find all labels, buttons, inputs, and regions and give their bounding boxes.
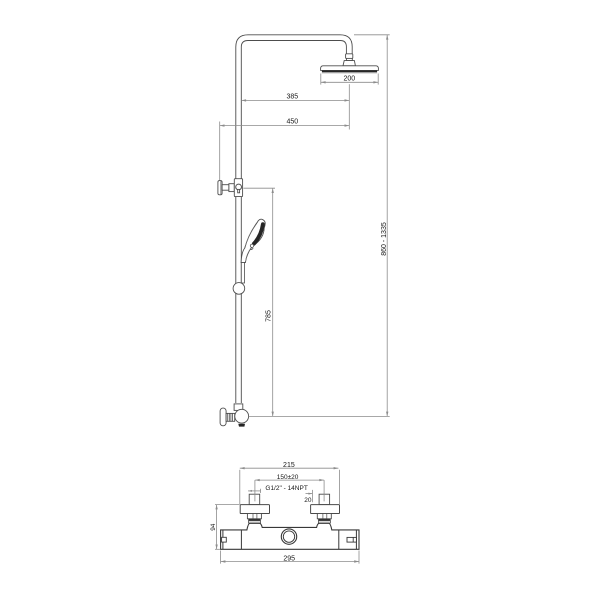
svg-text:295: 295 [283,556,295,563]
svg-text:215: 215 [283,462,295,469]
svg-text:785: 785 [266,310,273,322]
svg-text:860 - 1335: 860 - 1335 [381,222,388,256]
svg-text:94: 94 [210,523,217,531]
svg-text:G1/2" - 14NPT: G1/2" - 14NPT [265,485,307,492]
svg-text:20: 20 [304,497,312,504]
svg-text:200: 200 [343,76,355,83]
svg-text:385: 385 [286,93,298,100]
svg-text:150±20: 150±20 [277,474,299,481]
svg-text:450: 450 [286,119,298,126]
